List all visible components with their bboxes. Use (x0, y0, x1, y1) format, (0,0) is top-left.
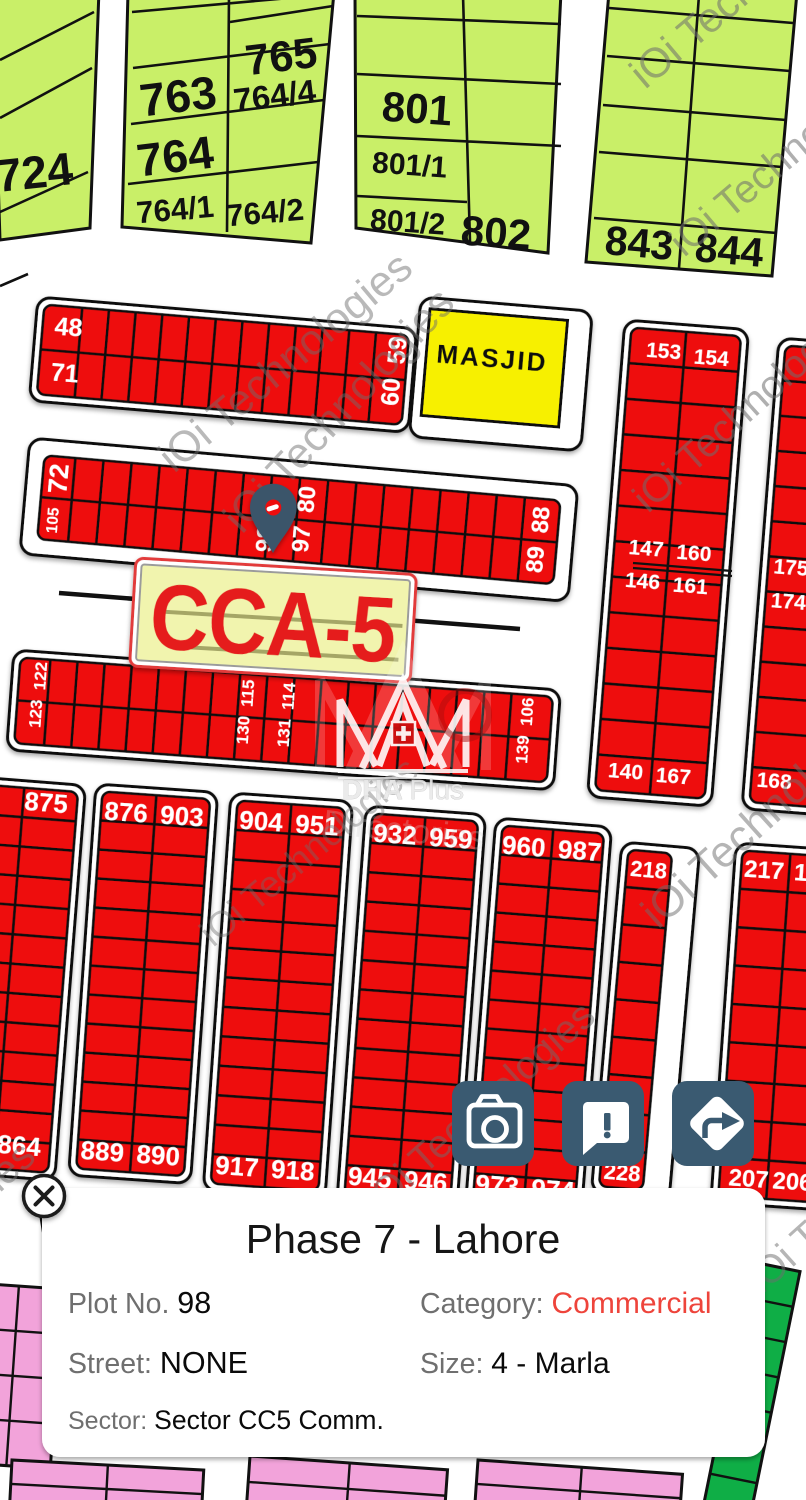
svg-text:146: 146 (624, 569, 661, 595)
svg-text:876: 876 (103, 796, 148, 829)
svg-text:89: 89 (521, 545, 550, 574)
svg-text:105: 105 (44, 506, 63, 534)
svg-text:175: 175 (773, 555, 806, 581)
svg-text:115: 115 (237, 679, 258, 708)
svg-text:167: 167 (655, 764, 692, 790)
svg-text:903: 903 (159, 800, 204, 833)
svg-text:917: 917 (214, 1150, 259, 1183)
svg-text:140: 140 (607, 759, 644, 785)
svg-text:106: 106 (517, 697, 538, 727)
svg-text:160: 160 (676, 541, 713, 567)
svg-text:139: 139 (512, 735, 533, 765)
svg-text:918: 918 (270, 1154, 315, 1187)
svg-text:154: 154 (693, 346, 730, 372)
svg-text:960: 960 (501, 830, 547, 863)
svg-text:843: 843 (603, 217, 675, 269)
svg-text:196: 196 (793, 859, 806, 889)
svg-text:88: 88 (527, 505, 556, 534)
svg-text:875: 875 (23, 786, 69, 819)
svg-text:763: 763 (137, 66, 220, 127)
svg-text:161: 161 (672, 574, 709, 600)
svg-text:206: 206 (772, 1167, 806, 1197)
svg-text:71: 71 (50, 358, 80, 388)
svg-text:801/1: 801/1 (371, 146, 448, 184)
svg-text:130: 130 (233, 715, 254, 745)
svg-text:801/2: 801/2 (369, 203, 446, 241)
svg-text:Category: Commercial: Category: Commercial (420, 1287, 712, 1320)
svg-text:764/1: 764/1 (135, 189, 215, 231)
svg-text:DHA Plus: DHA Plus (342, 774, 464, 805)
svg-text:174: 174 (770, 589, 806, 615)
svg-text:97: 97 (287, 525, 316, 554)
svg-text:889: 889 (80, 1135, 125, 1168)
svg-text:153: 153 (645, 339, 682, 365)
svg-text:Sector: Sector CC5 Comm.: Sector: Sector CC5 Comm. (68, 1405, 384, 1435)
svg-text:48: 48 (54, 313, 84, 343)
svg-text:801: 801 (380, 83, 453, 135)
svg-text:724: 724 (0, 142, 76, 202)
svg-text:904: 904 (238, 805, 284, 838)
svg-text:147: 147 (628, 536, 665, 562)
svg-text:802: 802 (459, 207, 532, 259)
svg-text:131: 131 (274, 718, 295, 748)
svg-text:Phase 7 - Lahore: Phase 7 - Lahore (246, 1216, 561, 1262)
svg-text:Plot No. 98: Plot No. 98 (68, 1286, 211, 1320)
svg-text:123: 123 (25, 699, 46, 729)
svg-text:764: 764 (134, 126, 217, 187)
svg-text:CCA-5: CCA-5 (147, 564, 398, 682)
svg-text:764/2: 764/2 (225, 192, 305, 234)
svg-text:122: 122 (30, 661, 51, 691)
svg-text:987: 987 (557, 834, 603, 867)
svg-text:114: 114 (278, 681, 299, 710)
svg-text:Street: NONE: Street: NONE (68, 1346, 248, 1380)
svg-text:Size: 4 - Marla: Size: 4 - Marla (420, 1347, 610, 1380)
svg-text:890: 890 (136, 1139, 181, 1172)
svg-text:72: 72 (42, 462, 75, 495)
